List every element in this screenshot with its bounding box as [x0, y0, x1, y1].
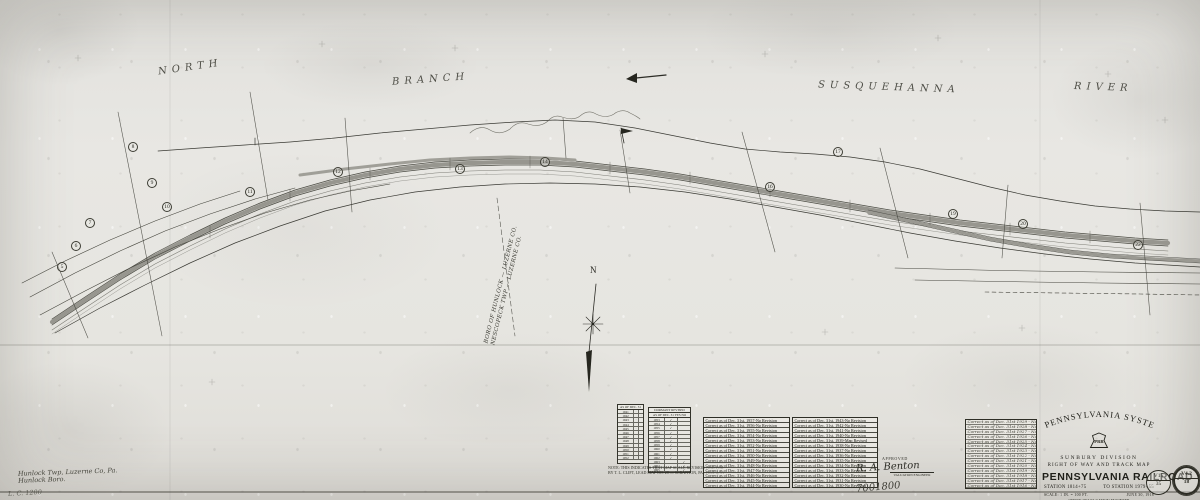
system-title-text: PENNSYLVANIA SYSTEM: [1042, 404, 1156, 430]
north-arrow-letter: N: [590, 265, 597, 275]
label-river: RIVER: [1074, 81, 1133, 94]
index-table: AS OF DEC. 31 1941· 1942· 1943· 1944 194…: [617, 404, 644, 464]
north-arrow: [583, 284, 603, 392]
svg-text:PRR: PRR: [1094, 439, 1104, 444]
station-from: STATION 1814+75: [1044, 485, 1086, 490]
revision-entry: Correct as of Dec. 31st 1916 - No Revisi…: [966, 484, 1036, 489]
revision-table-1: Correct as of Dec. 31st, 1957-No Revisio…: [703, 417, 790, 488]
map-type: RIGHT OF WAY AND TRACK MAP: [1042, 463, 1156, 468]
arched-system-title: PENNSYLVANIA SYSTEM: [1042, 404, 1156, 430]
index-table-rows: 1941· 1942· 1943· 1944 1945· 1946· 1947 …: [618, 410, 643, 460]
map-sheet: NORTH BRANCH SUSQUEHANNA RIVER N BORO OF…: [0, 0, 1200, 500]
stamp-bottom: 35: [1147, 481, 1170, 488]
property-lines: [52, 92, 1150, 338]
stamp-top: V15: [1147, 473, 1170, 481]
map-date: JUNE 30, 1918: [1127, 493, 1154, 497]
file-stamp-v42: V4.2 18: [1173, 466, 1200, 495]
stamp-bottom: 18: [1175, 479, 1198, 486]
title-block: PENNSYLVANIA SYSTEM PRR SUNBURY DIVISION…: [1042, 404, 1156, 500]
svg-text:PENNSYLVANIA SYSTEM: PENNSYLVANIA SYSTEM: [1042, 404, 1156, 430]
revision-entry: Correct as of Dec. 31st, 1944-No Revisio…: [704, 483, 789, 488]
index-table-row: 1952·: [618, 456, 643, 460]
stamp-top: V4.2: [1175, 471, 1198, 479]
survey-flag: [621, 128, 633, 143]
direction-arrow: [626, 73, 666, 83]
canal-road-lines: [895, 268, 1200, 295]
plus-marks: [75, 35, 1168, 385]
prr-keystone-logo: PRR: [1089, 432, 1109, 449]
file-stamp-v15: V15 35: [1146, 470, 1171, 495]
map-scale: SCALE: 1 IN. = 100 FT.: [1044, 493, 1088, 497]
dormant-table: DORMANT REVISED AS OF DEC. 31 YES NO 195…: [648, 407, 691, 473]
revision-table-3: Correct as of Dec. 31st 1929 - No Revisi…: [965, 419, 1037, 489]
scale-date: SCALE: 1 IN. = 100 FT. JUNE 30, 1918: [1042, 493, 1156, 497]
signature-block: APPROVED R. A. Benton VALUATION ENGINEER…: [856, 456, 946, 491]
creek-line: [470, 111, 640, 133]
division-name: SUNBURY DIVISION: [1042, 455, 1156, 461]
boundary-fan-lines: [22, 184, 390, 315]
railroad-name: PENNSYLVANIA RAILROAD: [1042, 471, 1156, 483]
station-range: STATION 1814+75 TO STATION 1979+55: [1042, 485, 1156, 490]
